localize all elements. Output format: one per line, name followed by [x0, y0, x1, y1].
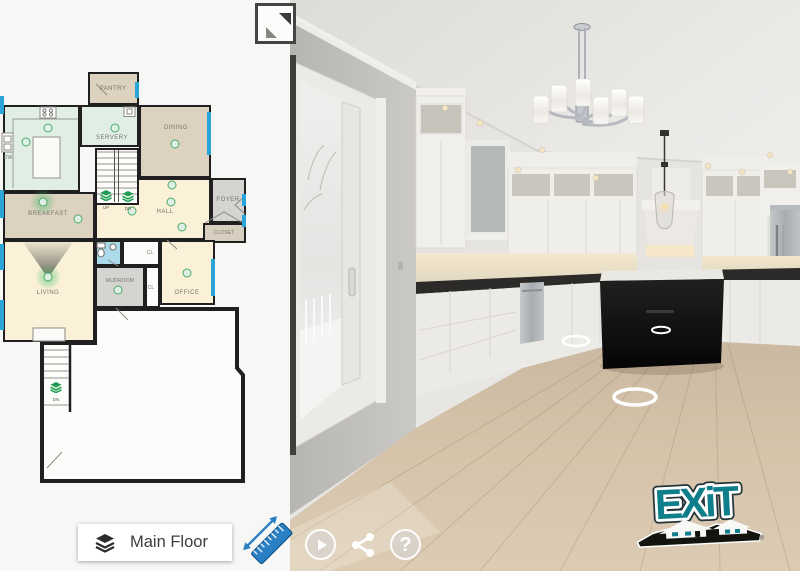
camera-waypoint[interactable] [22, 138, 31, 147]
exit-logo-text: EXiT [654, 477, 741, 528]
floorplan-expand-button[interactable] [255, 3, 296, 44]
floor-selector-button[interactable]: Main Floor [78, 524, 232, 561]
stairs-down-icon [122, 191, 135, 202]
closet-hall-a[interactable] [122, 240, 160, 266]
floorplan-panel: PANTRY SERVERY DINING KITCHEN BREAKFAST … [0, 0, 290, 571]
camera-waypoint[interactable] [114, 286, 123, 295]
floor-waypoint-mid[interactable] [563, 336, 589, 346]
camera-waypoint[interactable] [167, 198, 176, 207]
play-icon [311, 535, 331, 555]
window-office [211, 259, 215, 296]
help-button[interactable]: ? [390, 529, 421, 560]
window-kitchen [0, 96, 4, 114]
room-pantry[interactable] [88, 72, 139, 105]
exit-realty-logo: EXiT EXiT EXiT ® [630, 474, 766, 553]
window-foyer-a [242, 194, 246, 206]
registered-mark: ® [759, 534, 765, 542]
sliding-glass-door [290, 55, 386, 455]
stairs-down-icon [50, 382, 63, 393]
camera-waypoint[interactable] [183, 269, 192, 278]
floor-change-down-garage[interactable]: DN [50, 380, 63, 402]
room-servery[interactable] [80, 105, 139, 147]
window-breakfast [0, 190, 4, 218]
tour-viewer: PANTRY SERVERY DINING KITCHEN BREAKFAST … [0, 0, 800, 571]
share-icon [348, 530, 378, 560]
wall-outlet [398, 262, 403, 270]
share-button[interactable] [347, 529, 378, 560]
camera-waypoint[interactable] [168, 181, 177, 190]
camera-waypoint[interactable] [39, 198, 48, 207]
kitchen-island [600, 269, 724, 375]
question-mark-glyph: ? [399, 535, 411, 555]
resize-arrows-icon [258, 6, 293, 41]
camera-waypoint[interactable] [178, 223, 187, 232]
floor-waypoint-near[interactable] [614, 389, 656, 405]
label-garage: GARAGE [140, 395, 171, 402]
ruler-icon [242, 515, 298, 571]
window-living-b [0, 300, 4, 330]
play-tour-button[interactable] [305, 529, 336, 560]
floor-change-up[interactable]: UP [100, 188, 113, 210]
garage-stairs [44, 343, 70, 468]
panorama-view[interactable]: ? EXiT EXiT EXiT [290, 0, 800, 571]
stairs-up-icon [100, 190, 113, 201]
camera-waypoint[interactable] [74, 215, 83, 224]
window-living-a [0, 244, 4, 270]
window-dining [207, 112, 211, 155]
current-position-marker[interactable] [44, 273, 53, 282]
camera-waypoint[interactable] [111, 124, 120, 133]
camera-waypoint[interactable] [171, 140, 180, 149]
closet-hall-b[interactable] [145, 266, 160, 308]
layers-icon [94, 532, 116, 554]
window-pantry [135, 82, 139, 98]
floor-change-down[interactable]: DN [122, 189, 135, 211]
measure-tool-button[interactable] [236, 514, 292, 570]
floor-selector-label: Main Floor [130, 533, 208, 552]
window-foyer-b [242, 215, 246, 227]
camera-waypoint[interactable] [44, 124, 53, 133]
exit-logo-graphic: EXiT EXiT EXiT ® [630, 474, 766, 553]
room-powder-bath[interactable] [95, 240, 122, 266]
room-kitchen[interactable] [3, 105, 80, 192]
room-foyer[interactable] [211, 178, 246, 223]
